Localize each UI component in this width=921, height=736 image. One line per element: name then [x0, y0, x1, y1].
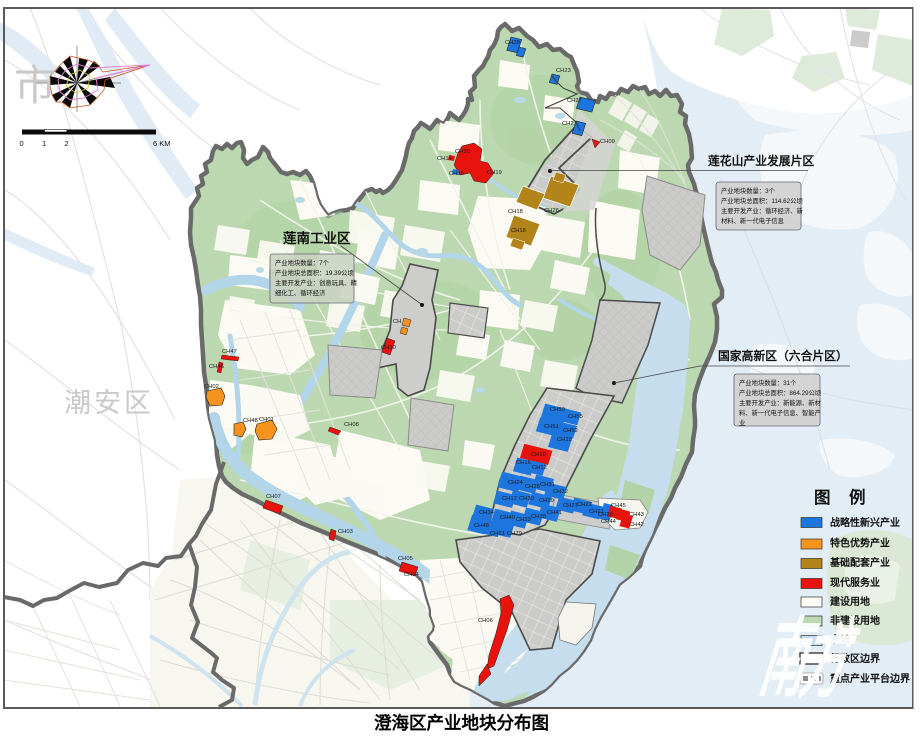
svg-text:莲南工业区: 莲南工业区	[283, 230, 351, 246]
svg-text:2: 2	[65, 139, 69, 148]
svg-text:CH18: CH18	[511, 228, 526, 234]
svg-text:主要开发产业：新能源、新材: 主要开发产业：新能源、新材	[739, 398, 822, 407]
svg-text:CH26: CH26	[544, 208, 559, 214]
svg-text:CH32: CH32	[553, 489, 568, 495]
svg-text:细化工、循环经济: 细化工、循环经济	[275, 288, 326, 297]
svg-text:CH10: CH10	[381, 345, 396, 351]
svg-text:CH61: CH61	[490, 531, 505, 537]
svg-text:0: 0	[20, 139, 24, 148]
svg-text:CH29: CH29	[539, 498, 554, 504]
svg-text:市: 市	[14, 62, 56, 109]
svg-text:1: 1	[42, 139, 46, 148]
svg-text:图: 图	[814, 488, 831, 507]
svg-text:CH12: CH12	[532, 465, 547, 471]
svg-text:特色优势产业: 特色优势产业	[830, 537, 890, 550]
svg-text:CH10: CH10	[531, 452, 546, 458]
svg-text:国家高新区（六合片区）: 国家高新区（六合片区）	[718, 349, 848, 363]
svg-text:产业地块总面积：864.29公顷: 产业地块总面积：864.29公顷	[739, 388, 822, 397]
svg-text:CH41: CH41	[547, 510, 562, 516]
svg-text:CH02: CH02	[204, 384, 219, 390]
svg-text:CH03: CH03	[338, 529, 353, 535]
svg-text:CH31: CH31	[540, 482, 555, 488]
svg-text:CH22: CH22	[577, 502, 592, 508]
svg-text:产业地块数量：3个: 产业地块数量：3个	[721, 186, 776, 195]
svg-text:CH24: CH24	[508, 480, 524, 486]
svg-text:CH08: CH08	[344, 422, 359, 428]
svg-text:CH16: CH16	[516, 460, 531, 466]
svg-text:CH45: CH45	[611, 503, 626, 509]
svg-text:例: 例	[849, 487, 866, 507]
svg-text:料、新一代电子信息、智能产: 料、新一代电子信息、智能产	[739, 408, 821, 417]
svg-text:产业地块数量：7个: 产业地块数量：7个	[275, 258, 330, 267]
svg-text:CH48: CH48	[474, 523, 489, 529]
svg-text:6 KM: 6 KM	[153, 139, 171, 148]
svg-text:CH43: CH43	[629, 512, 644, 518]
svg-text:CH50: CH50	[550, 407, 565, 413]
svg-text:CH44: CH44	[601, 519, 617, 525]
svg-text:主要开发产业：创意玩具、精: 主要开发产业：创意玩具、精	[275, 278, 358, 287]
svg-text:CH17: CH17	[502, 496, 517, 502]
svg-text:澄海区产业地块分布图: 澄海区产业地块分布图	[374, 713, 549, 733]
svg-text:莲花山产业发展片区: 莲花山产业发展片区	[708, 154, 814, 168]
svg-text:业: 业	[739, 418, 745, 427]
svg-text:CH20: CH20	[598, 512, 613, 518]
svg-text:CH25: CH25	[525, 484, 540, 490]
svg-text:CH05: CH05	[398, 556, 413, 562]
svg-text:CH33: CH33	[516, 517, 531, 523]
svg-text:现代服务业: 现代服务业	[830, 576, 880, 589]
svg-text:CH09: CH09	[600, 139, 615, 145]
svg-text:CH55: CH55	[568, 414, 583, 420]
svg-text:CH36: CH36	[455, 149, 470, 155]
svg-text:CH52: CH52	[563, 428, 578, 434]
svg-text:CH19: CH19	[487, 170, 502, 176]
svg-text:CH07: CH07	[266, 494, 281, 500]
svg-text:产业地块总面积：19.39公顷: 产业地块总面积：19.39公顷	[275, 268, 354, 277]
svg-text:CH04: CH04	[404, 572, 420, 578]
svg-text:基础配套产业: 基础配套产业	[829, 556, 890, 569]
svg-text:CH06: CH06	[478, 618, 493, 624]
svg-text:CH51: CH51	[544, 424, 559, 430]
svg-text:CH: CH	[393, 319, 401, 325]
svg-text:CH38: CH38	[531, 514, 546, 520]
svg-text:CH47: CH47	[222, 349, 237, 355]
svg-text:产业地块数量：31个: 产业地块数量：31个	[739, 378, 797, 387]
svg-text:CH01: CH01	[259, 417, 274, 423]
svg-text:CH18: CH18	[508, 209, 523, 215]
svg-text:CH27: CH27	[563, 503, 578, 509]
svg-text:CH42: CH42	[629, 522, 644, 528]
svg-text:材料、新一代电子信息: 材料、新一代电子信息	[721, 216, 784, 225]
svg-text:CH14: CH14	[437, 156, 453, 162]
svg-text:潮安区: 潮安区	[64, 388, 154, 418]
svg-text:CH28: CH28	[505, 40, 520, 46]
svg-text:CH35: CH35	[449, 171, 464, 177]
svg-text:CH30: CH30	[519, 496, 534, 502]
svg-text:CH27: CH27	[567, 98, 582, 104]
svg-text:CH79: CH79	[507, 531, 522, 537]
svg-text:CH46: CH46	[209, 364, 224, 370]
svg-text:产业地块总面积：114.62公顷: 产业地块总面积：114.62公顷	[721, 196, 803, 205]
svg-text:CH48: CH48	[243, 418, 258, 424]
svg-text:战略性新兴产业: 战略性新兴产业	[830, 516, 900, 529]
svg-text:CH27: CH27	[562, 121, 577, 127]
svg-text:CH40: CH40	[500, 515, 515, 521]
svg-text:主要开发产业：循环经济、新: 主要开发产业：循环经济、新	[721, 206, 804, 215]
svg-text:CH13: CH13	[557, 437, 572, 443]
svg-text:CH23: CH23	[556, 68, 571, 74]
svg-text:CH34: CH34	[479, 510, 495, 516]
